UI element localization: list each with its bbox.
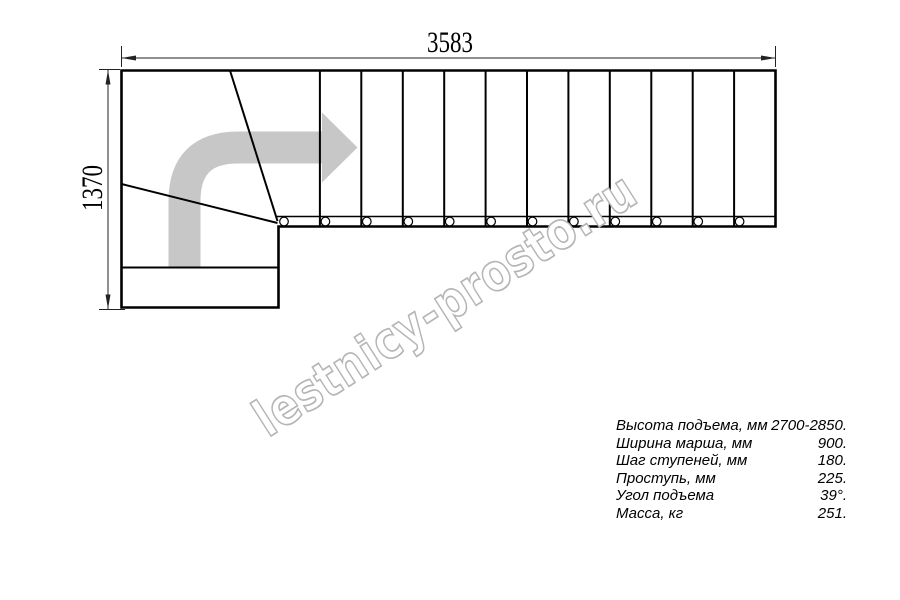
baluster-circle [487,217,496,226]
drawing-page: 3583 1370 lestnicy-prosto.ru Высота подъ… [0,0,900,600]
baluster-circle [735,217,744,226]
spec-row: Угол подъема 39°. [616,487,847,505]
spec-value: 180. [818,452,847,470]
height-dim-arrow-bottom [106,295,111,310]
spec-value: 2700-2850. [771,417,847,435]
tread-lines [320,70,734,227]
spec-value: 39°. [820,487,847,505]
baluster-circle [694,217,703,226]
spec-row: Высота подъема, мм 2700-2850. [616,417,847,435]
spec-row: Масса, кг 251. [616,505,847,523]
spec-value: 900. [818,435,847,453]
baluster-circle [404,217,413,226]
spec-value: 225. [818,470,847,488]
baluster-circle [445,217,454,226]
width-dim-arrow-left [122,56,137,61]
spec-table: Высота подъема, мм 2700-2850. Ширина мар… [616,417,847,522]
baluster-circle [321,217,330,226]
baluster-circle [363,217,372,226]
spec-value: 251. [818,505,847,523]
height-dim-arrow-top [106,70,111,85]
spec-label: Шаг ступеней, мм [616,452,747,470]
direction-arrow-icon [185,113,358,268]
width-dim-arrow-right [761,56,776,61]
baluster-circle [653,217,662,226]
height-dimension: 1370 [76,70,125,310]
height-dimension-label: 1370 [76,165,109,211]
spec-row: Шаг ступеней, мм 180. [616,452,847,470]
baluster-circles [280,217,744,226]
baluster-circle [280,217,289,226]
direction-arrow-head [322,113,358,183]
spec-label: Масса, кг [616,505,683,523]
spec-label: Высота подъема, мм [616,417,768,435]
spec-label: Проступь, мм [616,470,716,488]
width-dimension-label: 3583 [427,26,473,59]
spec-row: Проступь, мм 225. [616,470,847,488]
spec-row: Ширина марша, мм 900. [616,435,847,453]
spec-label: Ширина марша, мм [616,435,752,453]
watermark-text: lestnicy-prosto.ru [243,162,647,449]
direction-arrow-shaft [185,148,323,268]
spec-label: Угол подъема [616,487,714,505]
width-dimension: 3583 [122,26,776,67]
